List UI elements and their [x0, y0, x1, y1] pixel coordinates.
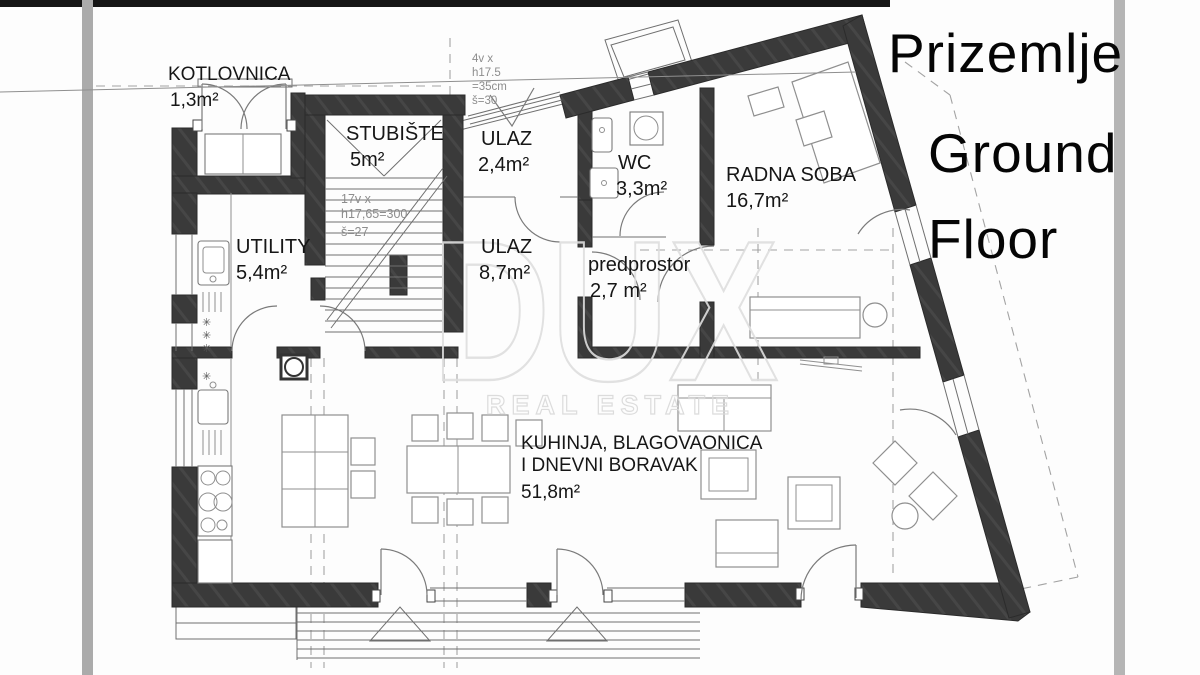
door-arc	[241, 84, 286, 129]
stair-note-1: 17v x	[341, 192, 372, 206]
door-arc	[381, 549, 427, 595]
radiator-icon: ✳	[202, 330, 211, 342]
wc-sink	[592, 118, 612, 152]
room-label-radna-soba: RADNA SOBA	[726, 164, 857, 186]
photo-left-bar	[82, 0, 93, 675]
room-label-kuhinja-line1: KUHINJA, BLAGOVAONICA	[521, 433, 763, 454]
kitchen-sink	[198, 390, 228, 424]
room-area-ulaz-entry: 2,4m²	[478, 154, 529, 176]
door-arc	[557, 549, 603, 595]
room-label-ulaz-entry: ULAZ	[481, 128, 532, 150]
room-label-kuhinja-line2: I DNEVNI BORAVAK	[521, 455, 698, 476]
room-label-predprostor: predprostor	[588, 254, 691, 276]
door-threshold-marker	[547, 607, 607, 641]
title-croatian: Prizemlje	[888, 22, 1123, 84]
room-label-stubiste: STUBIŠTE	[346, 122, 444, 145]
wc-toilet	[590, 168, 618, 198]
radiator-icon: ✳	[202, 317, 211, 329]
room-area-kuhinja: 51,8m²	[521, 482, 580, 503]
chair	[412, 497, 438, 523]
radiator-icon: ✳	[202, 371, 211, 383]
room-area-kotlovnica: 1,3m²	[170, 90, 219, 111]
chair	[482, 497, 508, 523]
sofa	[716, 520, 778, 567]
shelf	[748, 87, 784, 116]
plan-title: Prizemlje Ground Floor	[888, 22, 1123, 270]
watermark-tagline: REAL ESTATE	[486, 390, 735, 420]
room-label-ulaz-hall: ULAZ	[481, 236, 532, 258]
entry-steps-note-4: š=30	[472, 95, 497, 107]
fridge	[198, 540, 232, 583]
watermark: DUX REAL ESTATE	[432, 198, 778, 422]
room-area-wc: 3,3m²	[616, 178, 667, 200]
room-label-utility: UTILITY	[236, 236, 310, 258]
lounge-chair	[873, 441, 917, 485]
entry-steps-note-1: 4v x	[472, 53, 493, 65]
door-threshold-marker	[370, 607, 430, 641]
side-table	[863, 303, 887, 327]
entry-steps-note-2: h17.5	[472, 67, 501, 79]
title-english-line1: Ground	[928, 122, 1117, 184]
photo-right-bar	[1114, 0, 1125, 675]
side-table	[892, 503, 918, 529]
door-arc	[900, 409, 956, 435]
door-arc	[801, 545, 856, 600]
radiator-icon: ✳	[202, 343, 211, 355]
room-area-stubiste: 5m²	[350, 149, 385, 171]
floor-plan-svg: ✳ ✳ ✳ ✳	[0, 0, 1200, 675]
room-area-ulaz-hall: 8,7m²	[479, 262, 530, 284]
stair-note-2: h17,65=300	[341, 207, 407, 221]
title-english-line2: Floor	[928, 208, 1058, 270]
room-area-predprostor: 2,7 m²	[590, 280, 647, 302]
stool	[351, 471, 375, 498]
chair	[447, 499, 473, 525]
stair-note-3: š=27	[341, 225, 369, 239]
room-area-radna-soba: 16,7m²	[726, 190, 789, 212]
terrace-steps	[176, 607, 700, 660]
room-label-wc: WC	[618, 152, 651, 174]
room-area-utility: 5,4m²	[236, 262, 287, 284]
door-arc	[858, 209, 910, 234]
floor-plan-image: ✳ ✳ ✳ ✳	[0, 0, 1200, 675]
door-arc	[232, 306, 277, 351]
photo-top-strip	[0, 0, 890, 7]
stool	[351, 438, 375, 465]
entry-steps-note-3: =35cm	[472, 81, 507, 93]
room-label-kotlovnica: KOTLOVNICA	[168, 64, 291, 85]
